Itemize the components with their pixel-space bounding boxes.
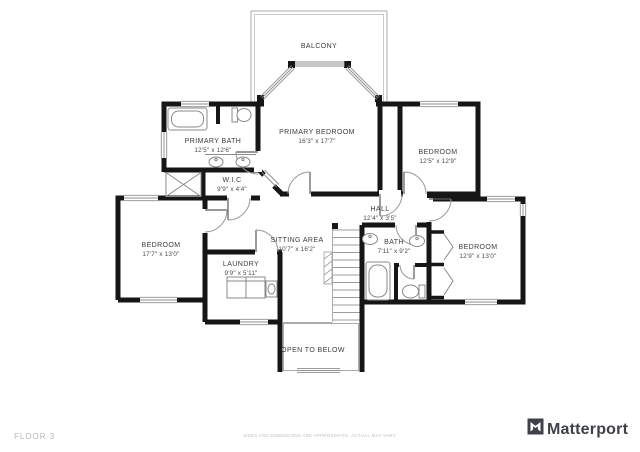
- svg-text:BEDROOM: BEDROOM: [419, 149, 458, 156]
- room-label-bedroom-right: BEDROOM 12'9" x 13'0": [459, 244, 498, 260]
- room-label-bedroom-left: BEDROOM 17'7" x 13'0": [142, 242, 181, 258]
- room-label-bedroom-top-right: BEDROOM 12'5" x 12'9": [419, 149, 458, 165]
- footer: FLOOR 3 SIZES AND DIMENSIONS ARE APPROXI…: [14, 419, 629, 442]
- stair-handrail: [324, 252, 332, 284]
- room-label-wic: W.I.C 9'9" x 4'4": [217, 177, 247, 193]
- matterport-mark-icon: [528, 419, 544, 435]
- svg-text:SITTING AREA: SITTING AREA: [270, 237, 323, 244]
- bathtub-icon: [168, 108, 207, 130]
- svg-text:10'7" x 16'2": 10'7" x 16'2": [278, 246, 315, 253]
- svg-text:PRIMARY BEDROOM: PRIMARY BEDROOM: [279, 129, 355, 136]
- washer-icon: [227, 277, 246, 298]
- svg-text:OPEN TO BELOW: OPEN TO BELOW: [281, 347, 345, 354]
- svg-text:W.I.C: W.I.C: [222, 177, 241, 184]
- svg-text:BATH: BATH: [384, 239, 404, 246]
- toilet-icon: [232, 108, 251, 122]
- svg-text:HALL: HALL: [370, 206, 389, 213]
- toilet-icon: [403, 285, 426, 298]
- svg-text:12'5" x 12'9": 12'5" x 12'9": [419, 158, 456, 165]
- room-label-primary-bath: PRIMARY BATH 12'5" x 12'6": [185, 138, 242, 154]
- floor-label: FLOOR 3: [14, 432, 55, 441]
- room-label-primary-bedroom: PRIMARY BEDROOM 16'3" x 17'7": [279, 129, 355, 145]
- floorplan-page: BALCONY PRIMARY BATH 12'5" x 12'6" PRIMA…: [0, 0, 640, 452]
- laundry-sink-icon: [266, 281, 277, 297]
- svg-text:PRIMARY BATH: PRIMARY BATH: [185, 138, 242, 145]
- svg-text:BEDROOM: BEDROOM: [459, 244, 498, 251]
- room-label-sitting-area: SITTING AREA 10'7" x 16'2": [270, 237, 323, 253]
- room-label-balcony: BALCONY: [301, 43, 337, 50]
- stairs: [324, 223, 361, 322]
- svg-text:9'9" x 4'4": 9'9" x 4'4": [217, 186, 247, 193]
- brand-name: Matterport: [547, 421, 629, 438]
- bathtub-icon: [366, 262, 390, 300]
- matterport-logo: Matterport: [528, 419, 629, 439]
- bifold-door-icon: [444, 268, 453, 295]
- room-label-laundry: LAUNDRY 9'9" x 5'11": [223, 261, 259, 277]
- room-label-open-below: OPEN TO BELOW: [281, 347, 345, 354]
- svg-text:LAUNDRY: LAUNDRY: [223, 261, 259, 268]
- floor-plan: BALCONY PRIMARY BATH 12'5" x 12'6" PRIMA…: [0, 0, 640, 452]
- svg-text:12'9" x 13'0": 12'9" x 13'0": [459, 253, 496, 260]
- disclaimer-text: SIZES AND DIMENSIONS ARE APPROXIMATE, AC…: [243, 433, 397, 438]
- dryer-icon: [246, 277, 265, 298]
- closet-x-icon: [166, 173, 201, 197]
- svg-text:7'11" x 9'2": 7'11" x 9'2": [378, 248, 411, 255]
- svg-text:12'4" x 3'5": 12'4" x 3'5": [363, 215, 396, 222]
- svg-text:BALCONY: BALCONY: [301, 43, 337, 50]
- svg-text:12'5" x 12'6": 12'5" x 12'6": [194, 147, 231, 154]
- svg-text:17'7" x 13'0": 17'7" x 13'0": [142, 251, 179, 258]
- svg-text:16'3" x 17'7": 16'3" x 17'7": [298, 138, 335, 145]
- room-label-bath: BATH 7'11" x 9'2": [378, 239, 411, 255]
- svg-text:BEDROOM: BEDROOM: [142, 242, 181, 249]
- svg-text:9'9" x 5'11": 9'9" x 5'11": [225, 270, 258, 277]
- vanity-sinks-icon: [205, 155, 256, 168]
- bifold-door-icon: [444, 234, 453, 260]
